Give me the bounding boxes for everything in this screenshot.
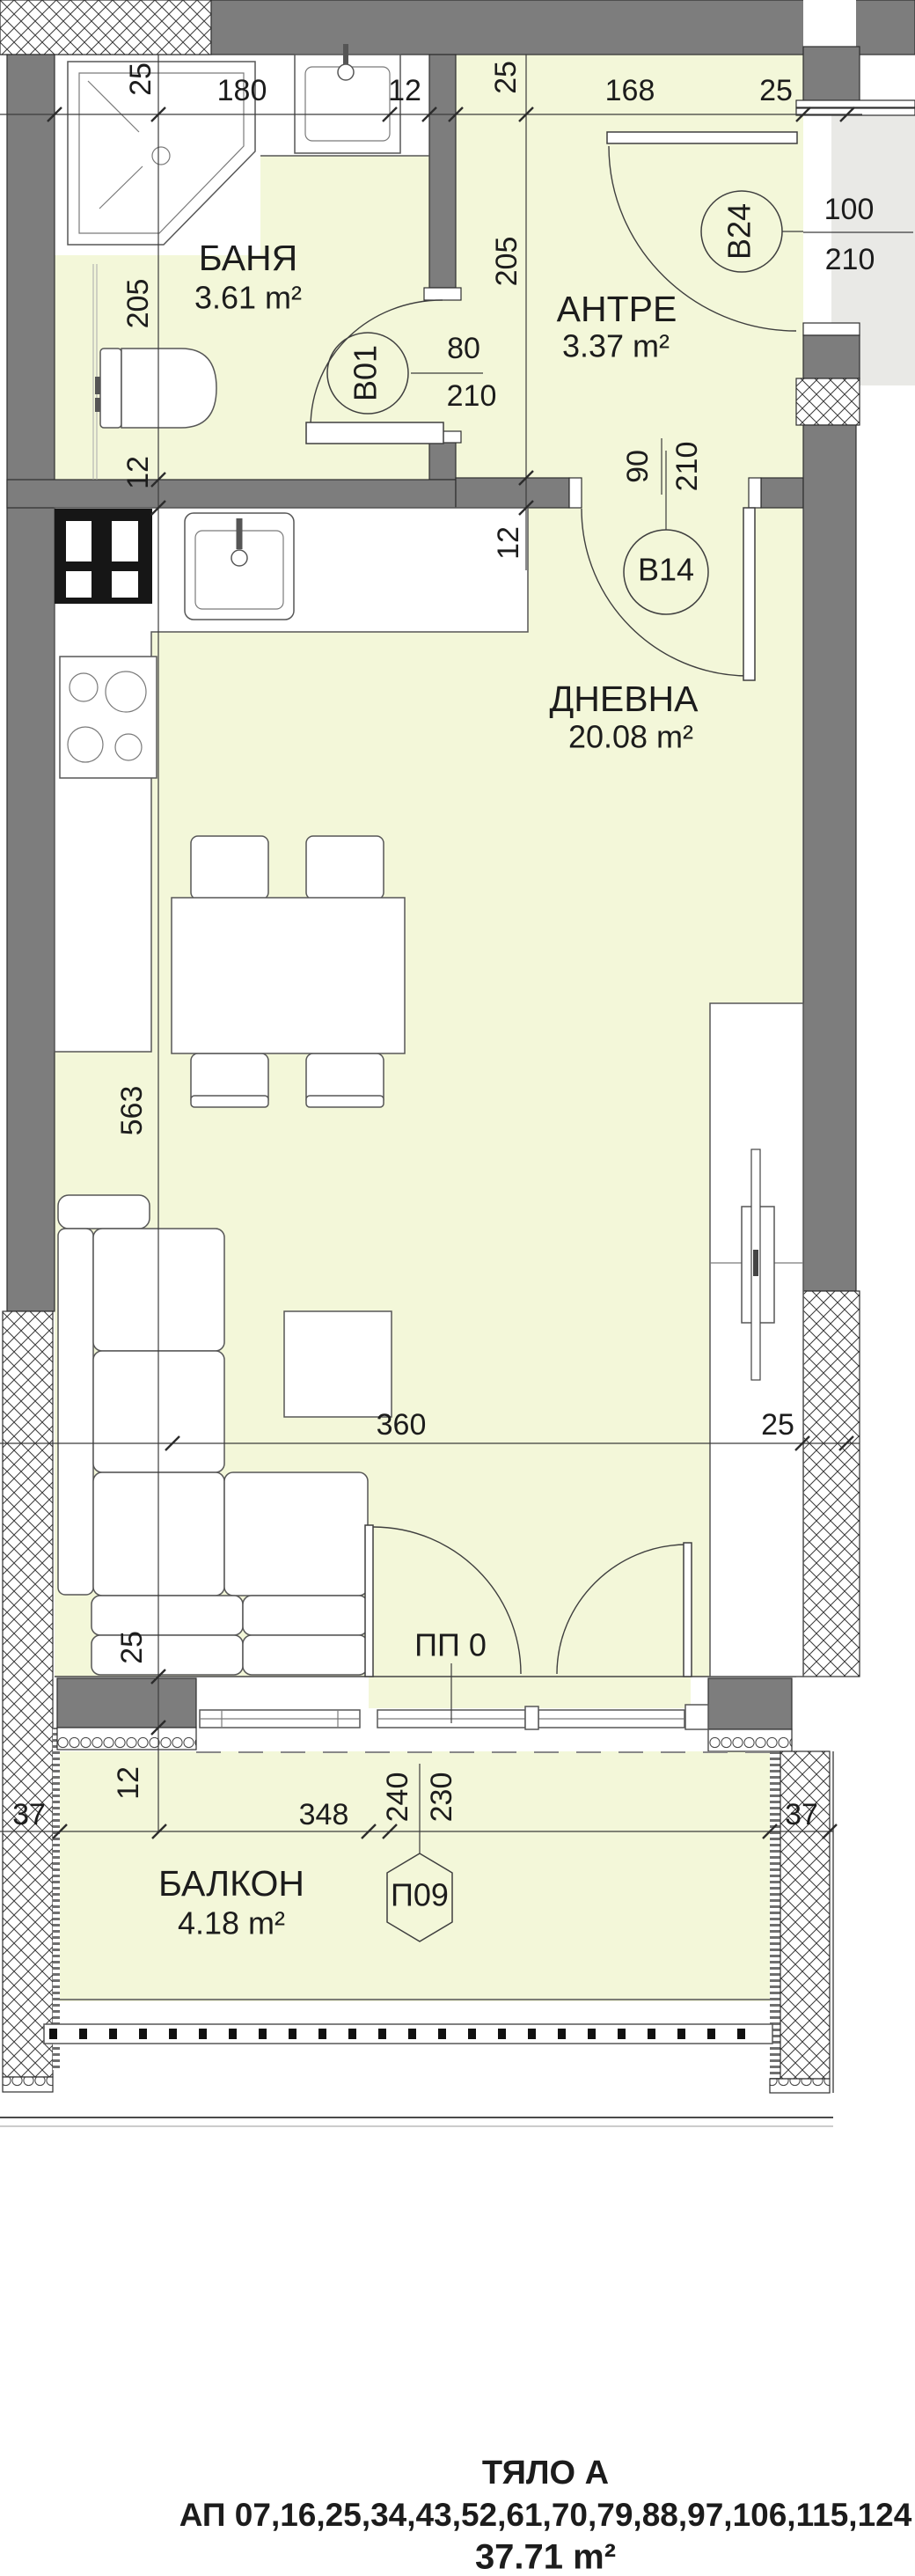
dim-hall-205: 205 [490, 237, 523, 287]
room-name-balcony: БАЛКОН [158, 1863, 304, 1904]
wall-right-pier [803, 335, 860, 378]
door-b14-label: B14 [638, 552, 694, 588]
sofa-cushion [243, 1596, 368, 1635]
dim-living-25: 25 [761, 1408, 794, 1442]
dim-left-12: 12 [121, 456, 155, 489]
dim-left-563: 563 [115, 1086, 149, 1136]
dining-table [172, 898, 405, 1053]
bathroom-faucet [338, 64, 354, 80]
chair-back [191, 1096, 268, 1107]
door-b14-jamb-right [749, 478, 761, 508]
room-name-hall: АНТРЕ [557, 289, 677, 329]
dim-top-25-right: 25 [759, 74, 793, 107]
sofa-cushion [243, 1635, 368, 1675]
floor-plan: 25 180 12 25 168 25 205 12 563 25 12 205… [0, 0, 915, 2576]
room-name-living: ДНЕВНА [549, 679, 699, 719]
room-area-living: 20.08 m² [568, 719, 693, 755]
toilet-button [95, 398, 100, 412]
wall-hall-bottom-right [761, 478, 803, 508]
dim-balcony-240: 240 [381, 1772, 414, 1823]
door-b14-opening [581, 478, 750, 508]
footer-apartments-list: АП 07,16,25,34,43,52,61,70,79,88,97,106,… [179, 2497, 912, 2533]
dim-b24-height: 210 [825, 243, 875, 276]
wall-left [7, 55, 55, 1311]
window-p09-label: П09 [391, 1877, 449, 1913]
door-b01-jamb-top [424, 288, 461, 300]
chair [306, 836, 384, 899]
toilet-tank [100, 349, 121, 428]
sofa-seat [224, 1472, 368, 1596]
dim-top-12: 12 [388, 74, 421, 107]
entry-threshold-1 [796, 100, 915, 107]
dim-b01-height: 210 [447, 379, 497, 413]
dim-left-12b: 12 [112, 1766, 145, 1800]
room-area-balcony: 4.18 m² [178, 1905, 285, 1941]
wall-bath-hall-lower [429, 442, 456, 480]
dim-balcony-230: 230 [425, 1772, 458, 1823]
dim-left-25: 25 [115, 1631, 149, 1664]
tv-mount [753, 1250, 758, 1276]
wall-right-hatched-upper [796, 378, 860, 425]
threshold-post [525, 1706, 538, 1729]
sofa-cushion [91, 1596, 243, 1635]
pier-bottom-left-insulation [57, 1728, 196, 1750]
chair-back [306, 1096, 384, 1107]
door-b01-leaf [306, 422, 443, 444]
room-area-bathroom: 3.61 m² [194, 280, 302, 316]
sofa-cushion [91, 1635, 243, 1675]
wall-left-lining [53, 1728, 60, 2070]
wall-right-hatched-lower [803, 1291, 860, 1677]
dim-balcony-348: 348 [299, 1798, 349, 1831]
hob [60, 657, 157, 778]
door-b14-leaf [743, 508, 755, 680]
balcony-door-left-leaf [365, 1525, 373, 1677]
threshold-post [685, 1705, 708, 1729]
dim-balcony-37-right: 37 [785, 1798, 818, 1831]
balcony-door-opening [369, 1675, 691, 1708]
dim-b14-height: 210 [670, 442, 704, 492]
sofa-armrest [58, 1195, 150, 1229]
wall-left-insulation [3, 2077, 53, 2092]
dim-b01-width: 80 [447, 332, 480, 365]
wall-bath-hall-upper [429, 55, 456, 288]
appliance-panel [66, 571, 91, 598]
pier-bottom-left [57, 1678, 196, 1728]
wall-bath-bottom [7, 480, 456, 508]
toilet-bowl [121, 349, 216, 428]
kitchen-faucet [231, 550, 247, 566]
dim-living-360: 360 [377, 1408, 427, 1442]
door-b01-label: B01 [348, 345, 384, 401]
door-b14-jamb-left [569, 478, 582, 508]
balcony-door-label: ПП 0 [414, 1627, 487, 1663]
wall-left-hatched [3, 1311, 53, 2077]
balcony-wall-insulation [770, 2079, 830, 2093]
appliance-panel [112, 571, 138, 598]
sofa-back [58, 1229, 93, 1595]
door-b24-leaf [607, 132, 797, 143]
room-area-hall: 3.37 m² [562, 328, 670, 364]
wall-right [803, 425, 856, 1291]
coffee-table [284, 1311, 392, 1417]
floor-plan-page: 25 180 12 25 168 25 205 12 563 25 12 205… [0, 0, 915, 2576]
appliance-panel [66, 521, 91, 561]
dim-left-205: 205 [121, 279, 155, 329]
footer-body-label: ТЯЛО А [482, 2455, 609, 2492]
room-name-bathroom: БАНЯ [199, 238, 298, 278]
dim-b14-width: 90 [621, 450, 655, 483]
pier-bottom-right [708, 1678, 792, 1729]
dim-top-25-mid: 25 [489, 61, 523, 94]
wall-hall-bottom-left [456, 478, 569, 508]
door-b24-label: B24 [721, 203, 758, 260]
dim-balcony-37-left: 37 [12, 1798, 46, 1831]
dim-top-180: 180 [217, 74, 267, 107]
wall-top-gap [803, 0, 856, 47]
footer: ТЯЛО А АП 07,16,25,34,43,52,61,70,79,88,… [179, 2455, 912, 2576]
wall-right-jamb [803, 323, 860, 335]
pier-bottom-right-insulation [708, 1729, 792, 1751]
balcony-door-right-leaf [684, 1543, 692, 1677]
dim-top-25-left: 25 [124, 62, 157, 96]
toilet-button [95, 377, 100, 394]
wall-entry-pier [803, 47, 860, 103]
chair [191, 836, 268, 899]
dim-hall-12: 12 [492, 526, 525, 560]
appliance-panel [112, 521, 138, 561]
wall-top-hatched [0, 0, 211, 55]
dim-top-168: 168 [605, 74, 655, 107]
dim-b24-width: 100 [824, 193, 875, 226]
footer-total-area: 37.71 m² [475, 2538, 616, 2576]
